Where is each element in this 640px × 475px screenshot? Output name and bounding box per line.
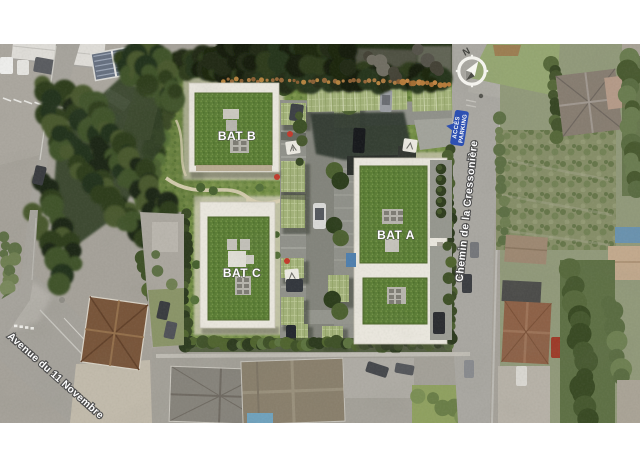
svg-text:BAT C: BAT C <box>223 266 261 280</box>
svg-text:BAT B: BAT B <box>218 129 256 143</box>
svg-text:BAT A: BAT A <box>377 228 415 242</box>
